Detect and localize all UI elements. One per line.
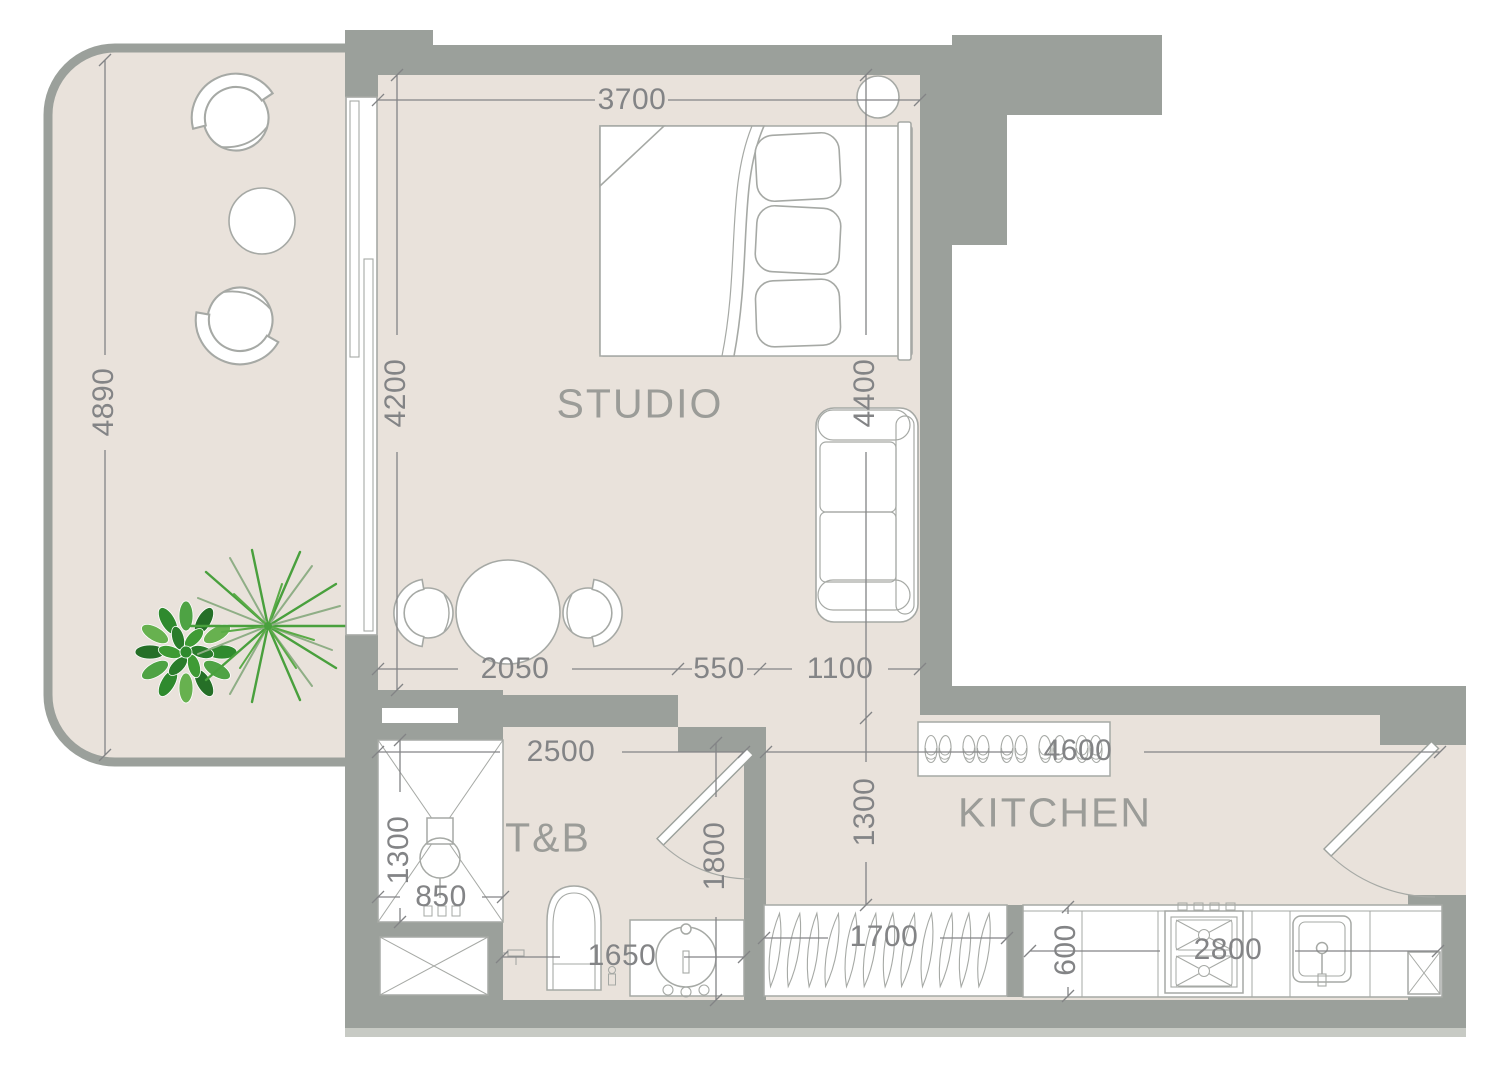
room-label-kitchen: KITCHEN (958, 793, 1152, 834)
dim-label-1700: 1700 (850, 922, 919, 952)
floorplan-canvas (0, 0, 1504, 1080)
dim-label-850: 850 (415, 882, 467, 912)
dim-label-600: 600 (1051, 924, 1081, 976)
dim-label-2500: 2500 (527, 737, 596, 767)
dim-label-1800: 1800 (700, 822, 730, 891)
wall-shadow (345, 1028, 1466, 1037)
balcony-table (229, 188, 295, 254)
dim-label-2050: 2050 (481, 654, 550, 684)
bedside-table (857, 76, 899, 118)
dim-label-1100: 1100 (807, 654, 874, 684)
dim-label-1300-kitchen: 1300 (850, 778, 880, 847)
sliding-window (346, 97, 377, 635)
dim-label-3700: 3700 (598, 85, 667, 115)
pillow (754, 132, 841, 348)
dim-label-1300-shower: 1300 (384, 816, 414, 885)
floor-plan: STUDIO T&B KITCHEN 4890 3700 4200 4400 2… (0, 0, 1504, 1080)
dim-label-4600: 4600 (1044, 736, 1113, 766)
dim-label-550: 550 (693, 654, 745, 684)
dim-label-4200: 4200 (381, 359, 411, 428)
headboard (898, 122, 911, 360)
bed (600, 122, 912, 360)
dining-table (456, 560, 560, 664)
dim-label-1650: 1650 (588, 941, 657, 971)
dim-label-2800: 2800 (1194, 935, 1263, 965)
room-label-studio: STUDIO (557, 384, 724, 425)
toilet (547, 886, 601, 990)
room-label-tb: T&B (505, 818, 591, 859)
shaft (380, 937, 488, 995)
dim-label-4400: 4400 (850, 359, 880, 428)
sofa (816, 408, 918, 622)
entry-shaft (1408, 952, 1440, 994)
dim-label-4890: 4890 (89, 368, 119, 437)
wall-niche (382, 708, 458, 723)
